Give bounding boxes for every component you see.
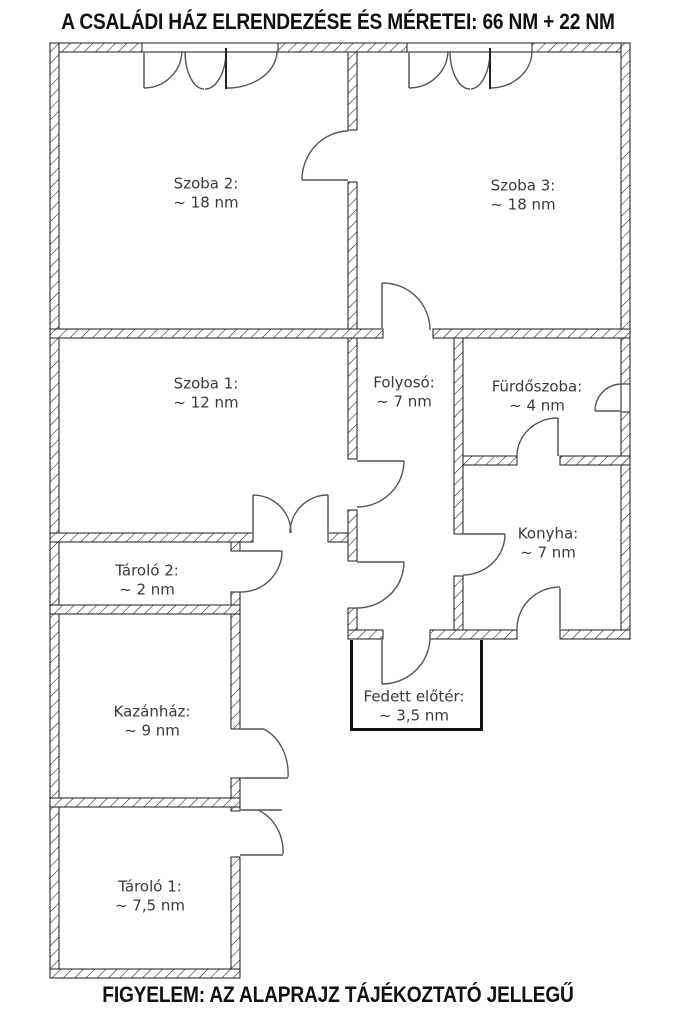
window-swing-arc [227,51,277,88]
room-name: Szoba 1: [173,374,238,393]
window-frames [142,43,630,412]
room-area: ~ 7 nm [518,543,578,562]
wall-left-outer [50,43,59,978]
door-swing-arc [382,283,430,330]
room-label-kazanhaz: Kazánház: ~ 9 nm [114,702,191,740]
wall-kazanhaz-right-lower [231,778,240,798]
wall-top-right [532,43,630,52]
room-name: Tároló 2: [115,561,179,580]
wall-tarolo2-right-bottom [231,592,240,605]
room-area: ~ 18 nm [490,195,555,214]
door-symbols [240,131,560,855]
room-label-fedett-eloter: Fedett előtér: ~ 3,5 nm [364,687,465,725]
window-furdoszoba [595,384,621,411]
wall-szoba1-bottom-west [50,533,253,542]
door-szoba2-szoba3 [302,131,348,180]
wall-top-left [59,43,142,52]
wall-folyoso-right-upper [454,338,463,534]
door-szoba3-folyoso [382,283,430,330]
floor-plan-page: A CSALÁDI HÁZ ELRENDEZÉSE ÉS MÉRETEI: 66… [0,0,676,1024]
wall-bottom-east [560,630,630,639]
window-szoba2 [144,48,277,89]
room-name: Konyha: [518,524,578,543]
floor-plan: Szoba 2: ~ 18 nm Szoba 3: ~ 18 nm Szoba … [0,0,676,1024]
room-area: ~ 12 nm [173,393,238,412]
wall-szoba2-szoba3-lower [348,182,357,329]
wall-furdo-konyha-west [463,456,517,465]
room-area: ~ 3,5 nm [364,706,465,725]
wall-szoba2-szoba3-upper [348,52,357,130]
wall-tarolo1-right-top [231,807,240,811]
door-konyha-back [517,587,560,630]
door-main-entrance [382,637,430,684]
room-area: ~ 7,5 nm [115,896,185,915]
window-frame-szoba3 [407,43,532,52]
window-swing-arc [185,51,204,89]
room-area: ~ 2 nm [115,580,179,599]
wall-mid-horizontal-left [50,329,383,338]
floorplan-drawing [0,0,676,1024]
room-label-szoba-3: Szoba 3: ~ 18 nm [490,176,555,214]
room-area: ~ 4 nm [492,396,583,415]
window-symbols [144,48,621,411]
door-swing-arc [517,418,558,456]
window-szoba3 [409,48,532,89]
room-area: ~ 18 nm [173,193,238,212]
double-door-szoba1 [253,495,328,533]
door-kazanhaz-exterior [240,729,288,778]
wall-kazanhaz-right-upper [231,614,240,729]
room-area: ~ 7 nm [373,392,435,411]
room-label-konyha: Konyha: ~ 7 nm [518,524,578,562]
room-name: Szoba 2: [173,174,238,193]
room-name: Tároló 1: [115,877,185,896]
window-swing-arc [595,384,621,411]
window-swing-arc [491,51,532,88]
wall-tarolo1-bottom [50,969,240,978]
door-swing-arc [357,461,404,507]
window-frame-furdoszoba [621,384,630,412]
wall-bottom-middle [430,630,517,639]
door-swing-arc [517,587,560,630]
window-swing-arc [409,51,448,88]
room-area: ~ 9 nm [114,721,191,740]
wall-folyoso-left-middle [348,510,357,561]
wall-kazanhaz-bottom [50,798,240,807]
wall-tarolo2-bottom [50,605,240,614]
room-label-tarolo-1: Tároló 1: ~ 7,5 nm [115,877,185,915]
door-folyoso-side [357,562,404,608]
door-konyha-furdoszoba [517,418,558,456]
room-name: Folyosó: [373,373,435,392]
door-swing-arc [253,495,291,533]
window-swing-arc [144,51,182,88]
door-szoba1-folyoso [357,461,404,507]
room-label-tarolo-2: Tároló 2: ~ 2 nm [115,561,179,599]
window-swing-arc [205,51,226,89]
room-name: Fedett előtér: [364,687,465,706]
room-name: Fürdőszoba: [492,377,583,396]
room-name: Kazánház: [114,702,191,721]
wall-tarolo1-right-lower [231,857,240,969]
door-swing-arc [258,810,283,854]
wall-top-middle [278,43,407,52]
door-swing-arc [264,729,288,777]
door-swing-arc [290,495,328,533]
wall-tarolo2-right-top [231,542,240,551]
door-tarolo1-exterior [240,810,283,855]
door-swing-arc [463,534,505,575]
wall-right-lower [621,412,630,639]
door-swing-arc [382,637,430,684]
window-swing-arc [471,51,490,89]
wall-mid-horizontal-right [433,329,630,338]
door-swing-arc [240,551,282,592]
wall-furdo-konyha-east [560,456,630,465]
wall-bottom-west [348,630,383,639]
wall-folyoso-left-upper [348,338,357,459]
room-name: Szoba 3: [490,176,555,195]
room-label-szoba-2: Szoba 2: ~ 18 nm [173,174,238,212]
room-label-furdoszoba: Fürdőszoba: ~ 4 nm [492,377,583,415]
door-tarolo2-exterior [240,551,282,592]
room-label-folyoso: Folyosó: ~ 7 nm [373,373,435,411]
page-footer: FIGYELEM: AZ ALAPRAJZ TÁJÉKOZTATÓ JELLEG… [44,982,632,1008]
room-label-szoba-1: Szoba 1: ~ 12 nm [173,374,238,412]
window-frame-szoba2 [142,43,278,52]
door-swing-arc [302,131,348,180]
door-folyoso-konyha [463,534,505,575]
door-swing-arc [357,562,404,608]
window-swing-arc [450,51,470,89]
